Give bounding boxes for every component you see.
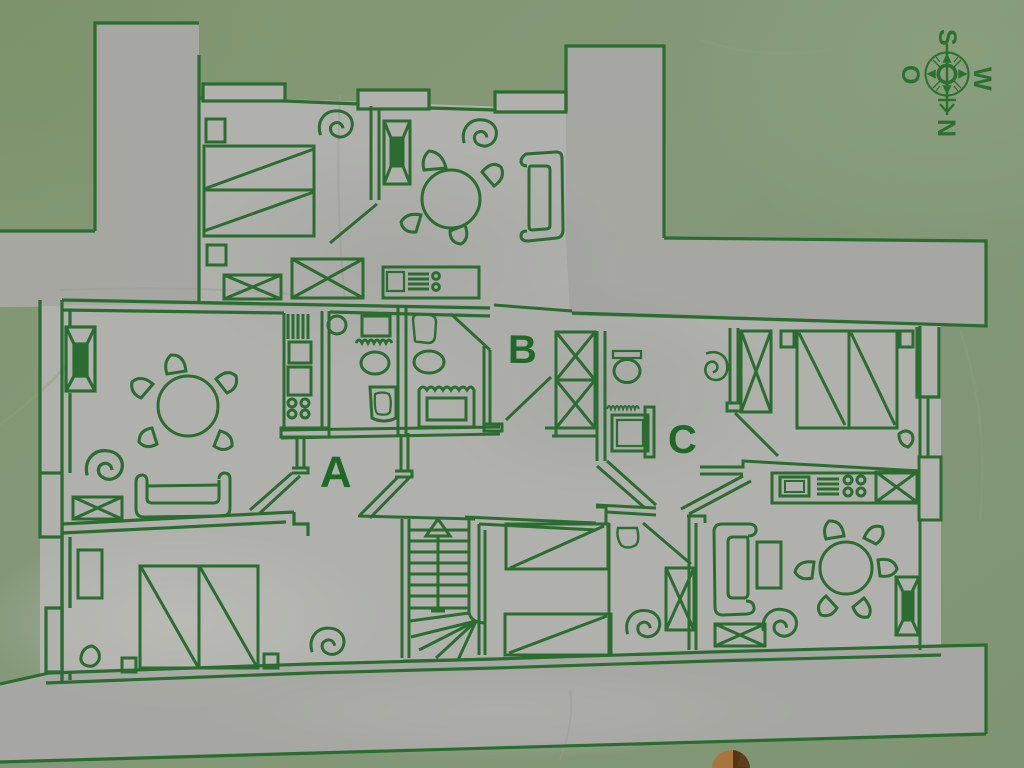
svg-text:C: C [668, 418, 697, 462]
svg-text:O: O [896, 65, 924, 84]
svg-text:B: B [508, 328, 537, 372]
svg-text:S: S [933, 29, 961, 46]
svg-text:W: W [968, 67, 996, 91]
svg-text:A: A [320, 448, 352, 497]
svg-text:N: N [932, 119, 960, 137]
